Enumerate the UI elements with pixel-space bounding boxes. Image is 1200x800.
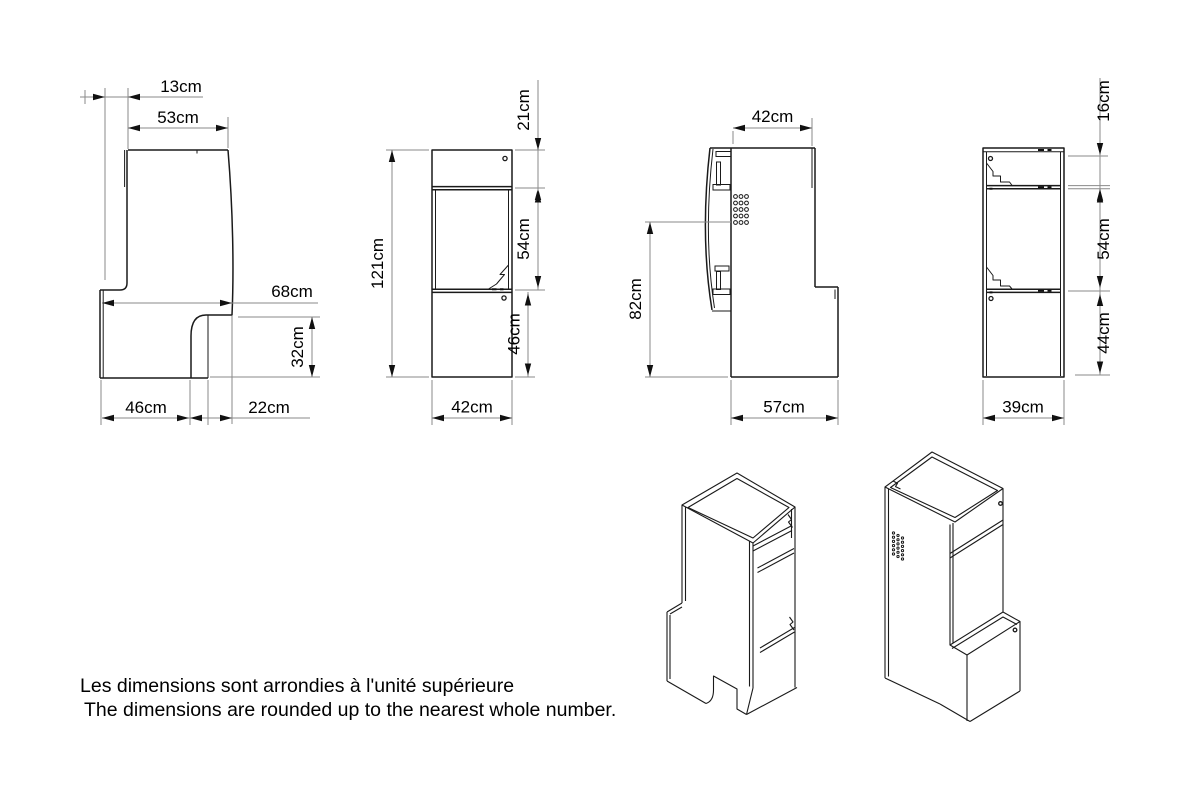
hinge-top (713, 152, 731, 191)
top-face-inner (688, 479, 789, 539)
body-front-curve-and-foot (191, 150, 233, 378)
arrowhead (983, 415, 995, 421)
dim-label-42cm: 42cm (451, 398, 493, 417)
arrowhead (1097, 362, 1103, 374)
seat-top-face (950, 612, 1020, 655)
arrowhead (525, 364, 531, 376)
dimension-bottom: 46cm 22cm (101, 380, 310, 425)
arrowhead (1097, 143, 1103, 155)
arrowhead (1097, 276, 1103, 288)
arrowhead (309, 317, 315, 329)
hinge-plate (716, 152, 731, 157)
arrowhead (500, 415, 512, 421)
technical-drawing-sheet: 13cm 53cm 68cm 32cm 46cm 22c (0, 0, 1200, 800)
dim-label-39cm: 39cm (1002, 398, 1044, 417)
bottom-right-edge (747, 688, 798, 715)
opening-side-edges (436, 190, 509, 289)
rear-view-outline (983, 148, 1064, 377)
arrowhead (1052, 415, 1064, 421)
arrowhead (128, 125, 140, 131)
front-view-outline (432, 150, 512, 377)
arrowhead (647, 365, 653, 377)
edge-ticks (1038, 150, 1052, 291)
dimension-top-width: 53cm (128, 108, 228, 148)
arrowhead (220, 415, 232, 421)
dim-label-46cm: 46cm (125, 398, 167, 417)
arrowhead (535, 138, 541, 150)
dim-label-16cm: 16cm (1094, 80, 1113, 122)
left-edge (682, 505, 686, 603)
interior-shelf-edges (753, 526, 795, 653)
isometric-view-front (885, 452, 1020, 722)
dim-label-68cm: 68cm (271, 282, 313, 301)
body-back-upper-edge (100, 150, 127, 290)
dim-label-57cm: 57cm (763, 398, 805, 417)
dim-label-42cm: 42cm (752, 107, 794, 126)
dimension-step-height: 32cm (210, 317, 320, 377)
note-block: Les dimensions sont arrondies à l'unité … (80, 675, 616, 721)
dimension-bottom-section: 46cm (505, 292, 536, 377)
hinge-bottom (713, 266, 730, 295)
body-back-edge (815, 148, 838, 377)
arrowhead (102, 300, 114, 306)
isometric-view-rear (667, 473, 797, 715)
dimension-height: 121cm (368, 150, 429, 377)
front-corner-edge (747, 541, 754, 715)
dim-label-54cm: 54cm (514, 218, 533, 260)
dimension-width: 39cm (983, 380, 1064, 425)
body-rect (983, 148, 1064, 377)
dimension-worktop-height: 82cm (626, 222, 731, 377)
corner-bracket (489, 265, 509, 289)
hinge-plate (713, 289, 730, 295)
side-view-b-outline (705, 148, 838, 377)
divider-top (432, 187, 512, 190)
side-view-b: 42cm 82cm 57cm (626, 107, 838, 425)
dim-label-21cm: 21cm (514, 89, 533, 131)
screw-hole (503, 156, 507, 160)
front-view: 121cm 21cm 54cm 46cm 42cm (368, 80, 545, 425)
dim-label-32cm: 32cm (288, 326, 307, 368)
screw-hole (989, 297, 993, 301)
hinge-plate (713, 185, 730, 191)
corner-bracket (987, 267, 1013, 290)
arrowhead (647, 222, 653, 234)
extension-line (386, 150, 429, 377)
dim-label-44cm: 44cm (1094, 312, 1113, 354)
arrowhead (535, 276, 541, 288)
right-edge (792, 507, 796, 688)
side-view-a-outline (100, 150, 233, 378)
dimension-middle-section: 54cm (514, 188, 545, 290)
vent-holes (892, 532, 903, 560)
arrowhead (389, 150, 395, 162)
bracket-dashes (990, 189, 993, 293)
arrowhead (216, 125, 228, 131)
bottom-front-edge (667, 681, 706, 704)
extension-line (645, 222, 731, 377)
side-view-a: 13cm 53cm 68cm 32cm 46cm 22c (80, 77, 320, 425)
vent-holes (734, 195, 749, 225)
arrowhead (525, 294, 531, 306)
dimension-top-depth: 42cm (733, 107, 812, 146)
arrowhead (220, 300, 232, 306)
dim-label-54cm: 54cm (1094, 218, 1113, 260)
arrowhead (93, 94, 105, 100)
dim-label-82cm: 82cm (626, 278, 645, 320)
arrowhead (800, 125, 812, 131)
body-rect (432, 150, 512, 377)
arrowhead (826, 415, 838, 421)
dim-label-22cm: 22cm (248, 398, 290, 417)
arrowhead (190, 415, 202, 421)
corner-bracket (987, 163, 1013, 186)
dimension-bottom-depth: 57cm (731, 380, 838, 425)
arrowhead (128, 94, 140, 100)
footwell-cutout (706, 676, 747, 715)
screw-hole (502, 296, 506, 300)
dim-label-13cm: 13cm (160, 77, 202, 96)
technical-drawing: 13cm 53cm 68cm 32cm 46cm 22c (0, 0, 1200, 800)
note-text-fr: Les dimensions sont arrondies à l'unité … (80, 675, 514, 697)
arrowhead (177, 415, 189, 421)
top-slab (885, 452, 1003, 522)
dimension-width: 42cm (432, 380, 512, 425)
dim-label-46cm: 46cm (505, 313, 524, 355)
front-column-edge (950, 523, 953, 645)
rear-view: 16cm 54cm 44cm 39cm (983, 78, 1113, 425)
arrowhead (1097, 191, 1103, 203)
arrowhead (309, 365, 315, 377)
dim-label-53cm: 53cm (157, 108, 199, 127)
arrowhead (731, 415, 743, 421)
side-panel (885, 487, 940, 704)
dimension-top-section: 21cm (514, 80, 545, 202)
arrowhead (733, 125, 745, 131)
hinge-arm (717, 162, 721, 185)
hinge-arm (717, 272, 721, 290)
seat-front-edges (940, 622, 1020, 722)
arrowhead (389, 365, 395, 377)
seat-step (667, 603, 682, 681)
dim-label-121cm: 121cm (368, 238, 387, 289)
note-text-en: The dimensions are rounded up to the nea… (84, 699, 616, 721)
dimension-right-stack: 16cm 54cm 44cm (1068, 78, 1113, 375)
arrowhead (102, 415, 114, 421)
screw-hole (999, 502, 1003, 506)
screw-hole (1013, 628, 1017, 632)
screw-hole (989, 157, 993, 161)
arrowhead (1097, 294, 1103, 306)
arrowhead (432, 415, 444, 421)
hinge-plate (715, 266, 729, 271)
top-slab-inner (891, 457, 998, 518)
